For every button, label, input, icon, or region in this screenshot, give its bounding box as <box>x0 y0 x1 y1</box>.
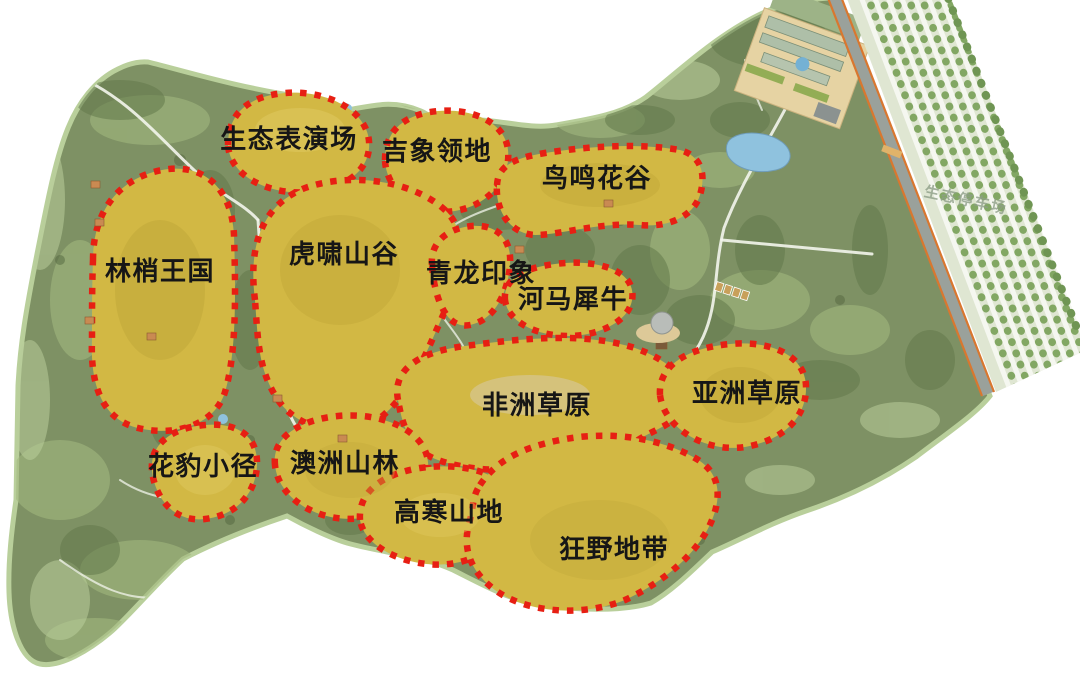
map-canvas: 生态停车场 <box>0 0 1080 679</box>
zone-label-wild-zone: 狂野地带 <box>559 534 669 564</box>
zoo-plan-screenshot: 生态停车场 <box>0 0 1080 679</box>
zone-label-treetop-kingdom: 林梢王国 <box>105 256 215 286</box>
zone-label-asian-savanna: 亚洲草原 <box>692 378 802 408</box>
zone-label-african-savanna: 非洲草原 <box>482 390 592 420</box>
zone-label-hippo-rhino: 河马犀牛 <box>518 284 628 314</box>
zone-label-elephant-territory: 吉象领地 <box>382 136 492 166</box>
zone-label-eco-performance: 生态表演场 <box>220 124 358 154</box>
zone-label-birdsong-valley: 鸟鸣花谷 <box>542 163 652 193</box>
zone-label-tiger-valley: 虎啸山谷 <box>289 239 399 269</box>
zone-label-australian-forest: 澳洲山林 <box>290 448 400 478</box>
zone-label-alpine-highland: 高寒山地 <box>394 497 504 527</box>
zone-label-leopard-trail: 花豹小径 <box>148 451 258 481</box>
